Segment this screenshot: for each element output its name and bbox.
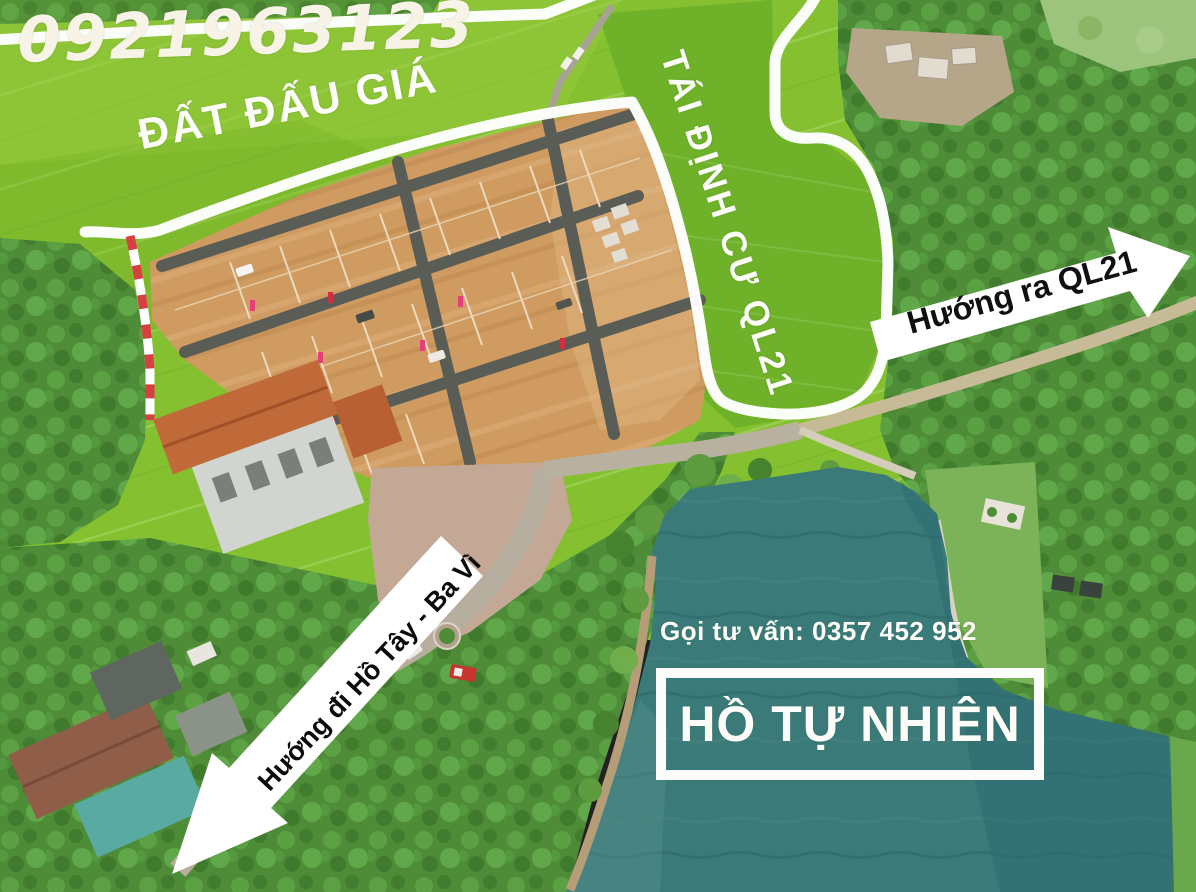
marsh-texture	[1078, 16, 1102, 40]
planter-tree	[439, 628, 455, 644]
shore-strip-right-edge	[1170, 736, 1196, 892]
aerial-real-estate-photo: 0921963123 ĐẤT ĐẤU GIÁ TÁI ĐỊNH CƯ QL21 …	[0, 0, 1196, 892]
lake-label: HỒ TỰ NHIÊN	[679, 695, 1020, 753]
consult-phone-line: Gọi tư vấn: 0357 452 952	[660, 616, 977, 647]
marsh-texture	[1136, 26, 1164, 54]
lake-label-box: HỒ TỰ NHIÊN	[656, 668, 1044, 780]
